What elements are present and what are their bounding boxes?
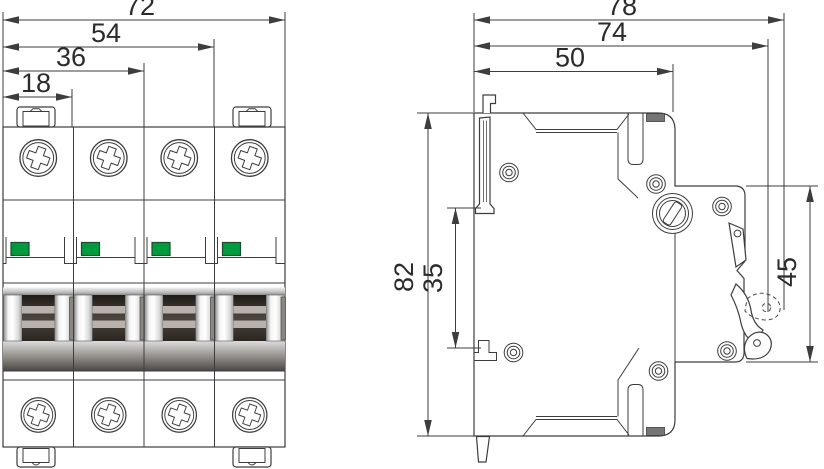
top-tab-left xyxy=(17,107,55,127)
dim-label-50: 50 xyxy=(555,43,585,73)
top-terminal-opening xyxy=(647,114,665,122)
dim-label-72: 72 xyxy=(125,0,155,21)
dimension-54: 54 xyxy=(3,18,214,51)
dim-label-82: 82 xyxy=(389,262,419,292)
din-clip-hook xyxy=(483,95,496,113)
dim-label-45: 45 xyxy=(772,257,802,287)
dimension-74: 74 xyxy=(474,17,768,50)
front-view: 72 54 36 18 xyxy=(3,0,286,467)
dim-label-35: 35 xyxy=(418,263,448,293)
dim-label-54: 54 xyxy=(91,18,121,48)
dimension-35: 35 xyxy=(418,208,481,348)
drawing-canvas: 72 54 36 18 xyxy=(0,0,824,469)
dim-label-74: 74 xyxy=(597,17,627,47)
breaker-side-body xyxy=(474,113,745,436)
top-tab-right xyxy=(233,107,271,127)
dimension-72: 72 xyxy=(3,0,285,24)
side-view: 78 74 50 82 xyxy=(389,0,818,462)
dim-label-36: 36 xyxy=(56,42,86,72)
technical-drawing: 72 54 36 18 xyxy=(0,0,824,469)
bottom-tab-left xyxy=(17,447,55,467)
din-clip-spring-tab xyxy=(477,437,490,463)
bottom-terminal-opening xyxy=(647,428,665,436)
bottom-tab-right xyxy=(233,447,271,467)
dimension-78: 78 xyxy=(474,0,784,24)
dim-label-18: 18 xyxy=(21,68,51,98)
dimension-50: 50 xyxy=(474,43,673,76)
